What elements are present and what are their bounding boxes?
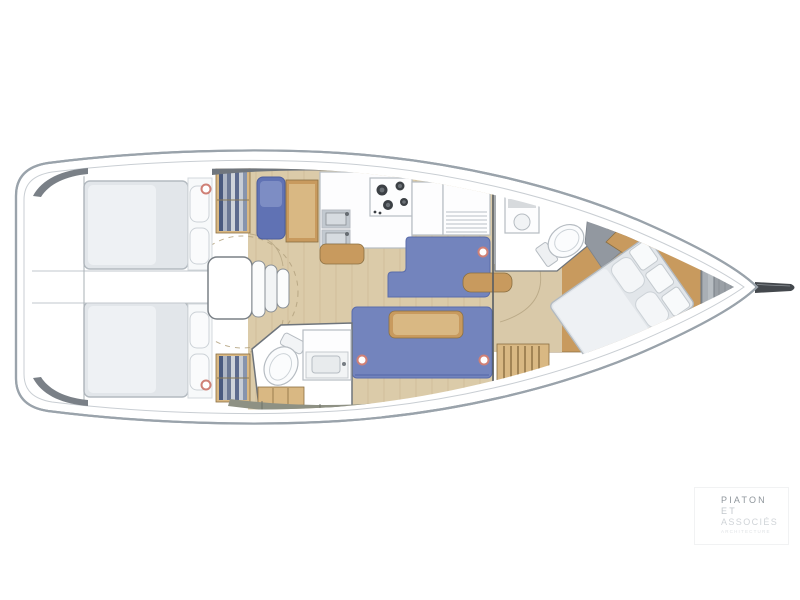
floor-plan-canvas: PIATON ET ASSOCIÉS ARCHITECTURE (0, 0, 800, 600)
watermark-line-1: PIATON (721, 496, 788, 505)
side-table (463, 273, 512, 292)
watermark-line-3: ASSOCIÉS (721, 518, 788, 527)
marker-stbd-aft (202, 381, 211, 390)
watermark-line-2: ET (721, 507, 788, 516)
wardrobe-port-contents (217, 169, 249, 231)
stove-top (370, 178, 412, 216)
step-3 (277, 269, 289, 308)
wardrobe-starboard (216, 354, 250, 402)
designer-watermark: PIATON ET ASSOCIÉS ARCHITECTURE (694, 487, 789, 545)
aft-stbd-pillow-1 (190, 312, 209, 348)
galley-sink-1-basin (326, 213, 346, 225)
faucet-1 (345, 212, 349, 216)
aft-cabin-port (84, 178, 212, 270)
step-1 (252, 261, 265, 317)
yacht-floor-plan (0, 0, 800, 600)
marker-port-aft (202, 185, 211, 194)
aft-stbd-bed-duvet (88, 306, 156, 393)
fwd-head-basin (514, 214, 530, 230)
aft-cabin-starboard (84, 302, 212, 398)
watermark-line-4: ARCHITECTURE (721, 530, 788, 535)
marker-settee-lower-left (358, 356, 367, 365)
saloon-table-top (393, 314, 459, 335)
aft-head-shower-grate (258, 387, 304, 405)
companionway-box (208, 257, 252, 319)
chart-table-top (289, 184, 315, 238)
aft-head-basin (312, 356, 340, 373)
bowsprit (755, 282, 795, 293)
stern-corridor (20, 271, 212, 303)
step-2 (265, 265, 277, 312)
marker-settee-lower-right (480, 356, 489, 365)
wardrobe-stbd-contents (217, 356, 249, 400)
aft-head-faucet (342, 362, 346, 366)
aft-port-pillow-2 (190, 228, 209, 264)
galley-cabinet (412, 182, 443, 235)
aft-port-bed-duvet (88, 185, 156, 265)
faucet-2 (345, 232, 349, 236)
nav-seat-cushion (260, 181, 282, 207)
wardrobe-port (216, 167, 250, 233)
marker-settee-upper (479, 248, 488, 257)
galley-console (320, 244, 364, 264)
galley-sink-2-basin (326, 233, 346, 244)
